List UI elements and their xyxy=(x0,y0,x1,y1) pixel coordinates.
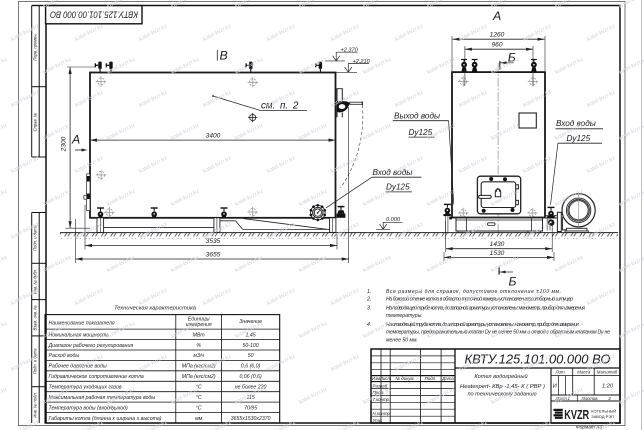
svg-text:Heatexpert- КВр -1,45- К ( РВР: Heatexpert- КВр -1,45- К ( РВР ) xyxy=(460,384,545,390)
svg-text:Перв. примен.: Перв. примен. xyxy=(33,33,38,60)
svg-text:3.: 3. xyxy=(367,306,371,312)
svg-text:0,6 (6,0): 0,6 (6,0) xyxy=(241,364,261,370)
svg-text:Масштаб: Масштаб xyxy=(597,369,618,374)
svg-text:1430: 1430 xyxy=(490,241,505,248)
svg-text:Максимальная рабочая температу: Максимальная рабочая температура воды xyxy=(49,395,156,401)
svg-text:КОТЕЛЬНЫЙ: КОТЕЛЬНЫЙ xyxy=(591,409,616,414)
svg-text:KVZR: KVZR xyxy=(564,407,589,422)
svg-text:Изм: Изм xyxy=(372,376,380,381)
svg-text:Гидравлическое сопротивление к: Гидравлическое сопротивление котла xyxy=(49,374,144,380)
svg-text:+2.210: +2.210 xyxy=(353,59,371,65)
svg-text:°С: °С xyxy=(196,395,202,401)
svg-text:В: В xyxy=(220,49,228,63)
svg-text:0.000: 0.000 xyxy=(386,217,401,223)
svg-text:На отводящей трубе котла ,до з: На отводящей трубе котла ,до запорной ар… xyxy=(386,321,579,328)
svg-text:0,06 (0,6): 0,06 (0,6) xyxy=(239,374,261,380)
svg-text:Утв.: Утв. xyxy=(373,418,383,423)
svg-text:960: 960 xyxy=(491,42,502,49)
svg-text:менее 50 мм.: менее 50 мм. xyxy=(386,337,418,343)
svg-text:3400: 3400 xyxy=(206,133,221,140)
svg-text:1:20: 1:20 xyxy=(602,384,614,390)
svg-text:°С: °С xyxy=(196,405,202,411)
svg-text:2: 2 xyxy=(608,396,612,401)
svg-text:МВт: МВт xyxy=(193,332,206,338)
svg-text:3655х1530х2370: 3655х1530х2370 xyxy=(231,416,271,422)
svg-text:+2.370: +2.370 xyxy=(341,48,359,54)
svg-text:2300: 2300 xyxy=(61,136,68,152)
svg-text:Температура уходящих газов: Температура уходящих газов xyxy=(49,385,122,391)
svg-text:КВТУ.125.101.00.000 ВО: КВТУ.125.101.00.000 ВО xyxy=(50,10,138,20)
svg-text:50: 50 xyxy=(248,353,254,359)
svg-text:%: % xyxy=(196,343,201,349)
svg-text:3655: 3655 xyxy=(206,252,221,259)
svg-text:№ докум.: № докум. xyxy=(395,376,414,381)
svg-text:Лист: Лист xyxy=(379,376,392,381)
svg-text:Справ. №: Справ. № xyxy=(33,112,38,131)
svg-text:Техническая характеристика: Техническая характеристика xyxy=(114,306,197,312)
svg-text:Лит.: Лит. xyxy=(555,369,566,374)
svg-text:Подп.: Подп. xyxy=(425,376,437,381)
svg-text:Расход воды: Расход воды xyxy=(49,353,80,359)
svg-text:м3/ч: м3/ч xyxy=(193,353,204,359)
svg-text:Дата: Дата xyxy=(441,376,454,381)
svg-text:1530: 1530 xyxy=(490,250,505,257)
svg-text:4.: 4. xyxy=(367,322,371,328)
svg-text:На подводящей трубе котла, до: На подводящей трубе котла, до запорной а… xyxy=(386,305,585,312)
svg-text:Взам. инв. №: Взам. инв. № xyxy=(33,305,38,331)
svg-text:И: И xyxy=(553,384,557,390)
svg-text:Габариты котла (длинна х ширин: Габариты котла (длинна х ширина х высота… xyxy=(49,416,162,422)
svg-text:1.: 1. xyxy=(367,289,371,295)
svg-text:Инв. № подл.: Инв. № подл. xyxy=(33,392,38,417)
svg-text:Диапазон рабочего регулировани: Диапазон рабочего регулирования xyxy=(48,343,134,349)
svg-text:2.: 2. xyxy=(366,297,371,303)
svg-text:ЗАВОД РЭП: ЗАВОД РЭП xyxy=(591,414,614,419)
svg-text:МПа (кгс/см2): МПа (кгс/см2) xyxy=(182,374,216,380)
svg-text:1260: 1260 xyxy=(490,32,505,39)
svg-text:50-100: 50-100 xyxy=(243,343,259,349)
svg-text:70/95: 70/95 xyxy=(244,405,257,411)
svg-text:Котел водогрейный: Котел водогрейный xyxy=(474,373,527,380)
svg-text:Выход воды: Выход воды xyxy=(394,111,440,120)
svg-text:Температура воды (вход/выход): Температура воды (вход/выход) xyxy=(49,405,128,411)
svg-text:Dy125: Dy125 xyxy=(567,134,591,143)
svg-text:мм: мм xyxy=(195,416,203,422)
svg-text:А: А xyxy=(492,9,501,23)
svg-text:Листов: Листов xyxy=(581,396,599,401)
svg-text:А: А xyxy=(71,133,80,147)
svg-text:Н.контр.: Н.контр. xyxy=(373,411,392,416)
svg-text:Б: Б xyxy=(509,275,517,289)
svg-text:температуры.: температуры. xyxy=(386,313,423,319)
